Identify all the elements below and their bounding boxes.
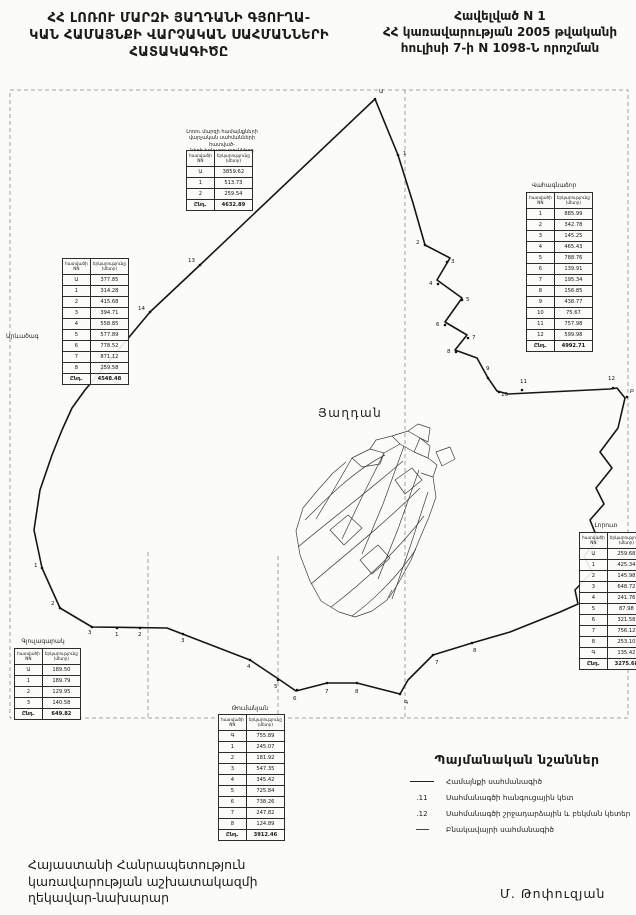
length-table-north: հատվածի NNերկարությունը (մետր)Ա3859.6215… (186, 150, 253, 211)
segment-length-cell: 513.73 (214, 178, 252, 189)
table-row: 5577.89 (63, 330, 129, 341)
boundary-point-label: 7 (325, 690, 329, 696)
boundary-point-dot (467, 337, 470, 340)
segment-length-cell: 465.43 (554, 242, 592, 253)
total-label-cell: Ընդ. (527, 341, 555, 352)
point-number-cell: 2 (187, 189, 215, 200)
table-row: 1075.67 (527, 308, 593, 319)
table-row: 5788.76 (527, 253, 593, 264)
table-row: Ա189.50 (15, 665, 81, 676)
boundary-point-dot (626, 396, 629, 399)
segment-length-cell: 145.98 (607, 571, 636, 582)
point-number-cell: 6 (580, 615, 608, 626)
point-number-cell: 8 (580, 637, 608, 648)
table-row: 1189.79 (15, 676, 81, 687)
total-label-cell: Ընդ. (15, 709, 43, 720)
boundary-point-dot (296, 689, 299, 692)
total-length-cell: 3912.46 (246, 830, 284, 841)
point-number-cell: 11 (527, 319, 555, 330)
table-row: 2259.54 (187, 189, 253, 200)
table-row: 2181.92 (219, 753, 285, 764)
table-row: 7247.82 (219, 808, 285, 819)
segment-length-cell: 547.35 (246, 764, 284, 775)
segment-length-cell: 135.42 (607, 648, 636, 659)
point-number-cell: 5 (580, 604, 608, 615)
boundary-point-dot (326, 682, 329, 685)
parcel-line (355, 590, 392, 617)
neighbor-community-label: Արևածագ (6, 333, 39, 340)
total-label-cell: Ընդ. (187, 200, 215, 211)
table-header-cell: հատվածի NN (15, 649, 43, 665)
boundary-length-table: հատվածի NNերկարությունը (մետր)Ա3859.6215… (186, 150, 253, 211)
table-caption-east-upper: Վահագնաձոր (522, 182, 586, 190)
boundary-point-dot (277, 679, 280, 682)
table-row: 3394.71 (63, 308, 129, 319)
parcel-line (296, 508, 310, 581)
table-header-cell: հատվածի NN (580, 533, 608, 549)
point-number-cell: 7 (219, 808, 247, 819)
boundary-point-dot (455, 351, 458, 354)
parcel-line (436, 447, 455, 466)
community-name-label: Յաղդան (318, 406, 382, 420)
boundary-point-label: 3 (451, 260, 455, 266)
length-table-south-west: հատվածի NNերկարությունը (մետր)Ա189.50118… (14, 648, 81, 720)
segment-length-cell: 599.98 (554, 330, 592, 341)
table-row: 4558.85 (63, 319, 129, 330)
table-row: 6139.91 (527, 264, 593, 275)
boundary-point-dot (471, 642, 474, 645)
table-row: 2129.95 (15, 687, 81, 698)
segment-length-cell: 885.99 (554, 209, 592, 220)
table-header-cell: հատվածի NN (219, 715, 247, 731)
table-row: 8156.85 (527, 286, 593, 297)
boundary-length-table: հատվածի NNերկարությունը (մետր)Ա259.68142… (579, 532, 636, 670)
boundary-point-label: 5 (274, 685, 278, 691)
point-number-cell: Ա (187, 167, 215, 178)
legend: Պայմանական նշաններ Համայնքի սահմանագիծ.1… (398, 752, 636, 834)
point-number-cell: 4 (580, 593, 608, 604)
boundary-point-dot (446, 261, 449, 264)
point-number-cell: 1 (187, 178, 215, 189)
segment-length-cell: 156.85 (554, 286, 592, 297)
table-row: 3547.35 (219, 764, 285, 775)
segment-length-cell: 145.25 (554, 231, 592, 242)
node-point-symbol: .11 (404, 794, 440, 802)
parcel-line (316, 458, 352, 519)
table-row: 4241.76 (580, 593, 636, 604)
segment-length-cell: 139.91 (554, 264, 592, 275)
table-row: Գ755.89 (219, 731, 285, 742)
table-row: 4465.43 (527, 242, 593, 253)
boundary-point-label: 8 (473, 649, 477, 655)
boundary-point-dot (356, 682, 359, 685)
boundary-point-label: 2 (51, 602, 55, 608)
segment-length-cell: 129.95 (42, 687, 80, 698)
segment-length-cell: 195.34 (554, 275, 592, 286)
point-number-cell: 4 (63, 319, 91, 330)
boundary-point-label: 14 (138, 307, 145, 313)
boundary-point-dot (612, 387, 615, 390)
table-header-cell: երկարությունը (մետր) (42, 649, 80, 665)
point-number-cell: 2 (219, 753, 247, 764)
boundary-point-dot (498, 391, 501, 394)
boundary-point-label: 12 (608, 377, 615, 383)
boundary-point-label: 11 (520, 380, 527, 386)
point-number-cell: 7 (63, 352, 91, 363)
boundary-point-dot (249, 659, 252, 662)
parcel-line (310, 581, 355, 617)
legend-item: Համայնքի սահմանագիծ (404, 777, 636, 786)
boundary-point-label: 9 (486, 367, 490, 373)
length-table-south: հատվածի NNերկարությունը (մետր)Գ755.89124… (218, 714, 285, 841)
segment-length-cell: 247.82 (246, 808, 284, 819)
table-row: 6738.26 (219, 797, 285, 808)
segment-length-cell: 259.58 (90, 363, 128, 374)
table-total-row: Ընդ.649.82 (15, 709, 81, 720)
segment-length-cell: 87.98 (607, 604, 636, 615)
settlement-parcels (296, 424, 455, 617)
boundary-point-label: 8 (447, 350, 451, 356)
point-number-cell: 6 (527, 264, 555, 275)
segment-length-cell: 342.78 (554, 220, 592, 231)
segment-length-cell: 425.34 (607, 560, 636, 571)
total-label-cell: Ընդ. (219, 830, 247, 841)
segment-length-cell: 189.79 (42, 676, 80, 687)
table-header-cell: երկարությունը (մետր) (90, 259, 128, 275)
boundary-point-dot (444, 324, 447, 327)
legend-item: .12Սահմանագծի շրջադարձային և բեկման կետե… (404, 809, 636, 818)
boundary-point-dot (397, 154, 400, 157)
total-label-cell: Ընդ. (63, 374, 91, 385)
boundary-point-dot (487, 377, 490, 380)
point-number-cell: 2 (15, 687, 43, 698)
point-number-cell: 7 (527, 275, 555, 286)
point-number-cell: 1 (63, 286, 91, 297)
total-label-cell: Ընդ. (580, 659, 608, 670)
legend-item: .11Սահմանագծի հանգուցային կետ (404, 793, 636, 802)
table-caption-south: Թումանյան (208, 705, 292, 713)
segment-length-cell: 314.28 (90, 286, 128, 297)
point-number-cell: 2 (580, 571, 608, 582)
boundary-point-dot (399, 693, 402, 696)
table-row: 1245.07 (219, 742, 285, 753)
table-row: 7871.12 (63, 352, 129, 363)
boundary-point-label: 2 (416, 241, 420, 247)
segment-length-cell: 648.72 (607, 582, 636, 593)
segment-length-cell: 321.58 (607, 615, 636, 626)
parcel-line (392, 492, 428, 599)
boundary-length-table: հատվածի NNերկարությունը (մետր)Ա189.50118… (14, 648, 81, 720)
table-row: 2145.98 (580, 571, 636, 582)
table-row: 1425.34 (580, 560, 636, 571)
segment-length-cell: 345.42 (246, 775, 284, 786)
point-number-cell: 1 (15, 676, 43, 687)
segment-length-cell: 181.92 (246, 753, 284, 764)
table-total-row: Ընդ.4632.89 (187, 200, 253, 211)
table-row: Ա3859.62 (187, 167, 253, 178)
point-number-cell: 8 (63, 363, 91, 374)
point-number-cell: 10 (527, 308, 555, 319)
table-row: 3145.25 (527, 231, 593, 242)
point-number-cell: 5 (527, 253, 555, 264)
parcel-line (421, 458, 437, 477)
table-row: 5725.84 (219, 786, 285, 797)
table-row: 3140.58 (15, 698, 81, 709)
segment-length-cell: 755.89 (246, 731, 284, 742)
table-header-cell: երկարությունը (մետր) (554, 193, 592, 209)
parcel-line (378, 470, 419, 579)
segment-length-cell: 189.50 (42, 665, 80, 676)
table-row: 3648.72 (580, 582, 636, 593)
table-total-row: Ընդ.4548.48 (63, 374, 129, 385)
segment-length-cell: 377.85 (90, 275, 128, 286)
point-number-cell: Գ (219, 731, 247, 742)
point-number-cell: 1 (580, 560, 608, 571)
boundary-point-label: 5 (466, 298, 470, 304)
legend-item: Բնակավայրի սահմանագիծ (404, 825, 636, 834)
segment-length-cell: 871.12 (90, 352, 128, 363)
point-number-cell: 5 (219, 786, 247, 797)
boundary-point-label: 13 (188, 259, 195, 265)
parcel-line (305, 455, 385, 520)
boundary-point-label: 1 (115, 633, 119, 639)
boundary-point-label: 4 (247, 665, 251, 671)
point-number-cell: 9 (527, 297, 555, 308)
table-header-cell: հատվածի NN (187, 151, 215, 167)
table-row: 1885.99 (527, 209, 593, 220)
table-header-cell: երկարությունը (մետր) (246, 715, 284, 731)
point-number-cell: 6 (219, 797, 247, 808)
table-caption-east-lower: Լորուտ (578, 522, 634, 530)
settlement-line-symbol (404, 829, 440, 830)
point-number-cell: Գ (580, 648, 608, 659)
point-number-cell: 4 (527, 242, 555, 253)
table-row: 12599.98 (527, 330, 593, 341)
boundary-point-dot (59, 607, 62, 610)
break-point-symbol: .12 (404, 810, 440, 818)
segment-length-cell: 577.89 (90, 330, 128, 341)
segment-length-cell: 3859.62 (214, 167, 252, 178)
point-number-cell: 12 (527, 330, 555, 341)
parcel-line (298, 461, 403, 547)
length-table-west: հատվածի NNերկարությունը (մետր)Ա377.85131… (62, 258, 129, 385)
point-number-cell: 3 (219, 764, 247, 775)
table-header-cell: հատվածի NN (63, 259, 91, 275)
signatory-position: Հայաստանի Հանրապետություն կառավարության … (28, 857, 258, 907)
legend-item-label: Բնակավայրի սահմանագիծ (446, 825, 554, 834)
segment-length-cell: 738.26 (246, 797, 284, 808)
point-number-cell: 2 (527, 220, 555, 231)
point-number-cell: 8 (219, 819, 247, 830)
boundary-point-dot (521, 389, 524, 392)
table-header-cell: երկարությունը (մետր) (214, 151, 252, 167)
segment-length-cell: 415.68 (90, 297, 128, 308)
segment-length-cell: 788.76 (554, 253, 592, 264)
boundary-point-label: 7 (472, 336, 476, 342)
boundary-point-label: 10 (501, 393, 508, 399)
boundary-point-dot (149, 311, 152, 314)
boundary-point-dot (437, 283, 440, 286)
point-number-cell: 8 (527, 286, 555, 297)
signatory-name: Մ. Թոփուզյան (500, 886, 605, 901)
parcel-line (392, 431, 420, 452)
segment-length-cell: 259.68 (607, 549, 636, 560)
segment-length-cell: 394.71 (90, 308, 128, 319)
table-row: 6778.52 (63, 341, 129, 352)
boundary-point-dot (432, 654, 435, 657)
boundary-point-label: Ա (379, 90, 383, 96)
table-row: Ա259.68 (580, 549, 636, 560)
boundary-point-label: 1 (403, 152, 407, 158)
boundary-point-label: 1 (34, 564, 38, 570)
parcel-line (414, 438, 430, 458)
point-number-cell: 4 (219, 775, 247, 786)
table-total-row: Ընդ.3275.68 (580, 659, 636, 670)
parcel-line (342, 453, 384, 539)
table-row: 2342.78 (527, 220, 593, 231)
segment-length-cell: 259.54 (214, 189, 252, 200)
total-length-cell: 3275.68 (607, 659, 636, 670)
boundary-point-dot (182, 633, 185, 636)
boundary-point-label: 6 (293, 697, 297, 703)
point-number-cell: 7 (580, 626, 608, 637)
boundary-point-label: 3 (88, 631, 92, 637)
total-length-cell: 649.82 (42, 709, 80, 720)
segment-length-cell: 778.52 (90, 341, 128, 352)
boundary-point-dot (199, 264, 202, 267)
table-row: 1314.28 (63, 286, 129, 297)
segment-length-cell: 558.85 (90, 319, 128, 330)
table-row: Ա377.85 (63, 275, 129, 286)
total-length-cell: 4632.89 (214, 200, 252, 211)
boundary-point-dot (139, 627, 142, 630)
boundary-point-dot (91, 626, 94, 629)
total-length-cell: 4992.71 (554, 341, 592, 352)
boundary-point-dot (374, 98, 377, 101)
point-number-cell: 3 (15, 698, 43, 709)
segment-length-cell: 124.89 (246, 819, 284, 830)
table-total-row: Ընդ.3912.46 (219, 830, 285, 841)
table-row: 587.98 (580, 604, 636, 615)
segment-length-cell: 253.10 (607, 637, 636, 648)
point-number-cell: Ա (580, 549, 608, 560)
table-row: 8253.10 (580, 637, 636, 648)
point-number-cell: 3 (63, 308, 91, 319)
legend-item-label: Սահմանագծի հանգուցային կետ (446, 793, 573, 802)
segment-length-cell: 140.58 (42, 698, 80, 709)
segment-length-cell: 438.77 (554, 297, 592, 308)
point-number-cell: 6 (63, 341, 91, 352)
boundary-point-label: 4 (429, 282, 433, 288)
boundary-point-label: 2 (138, 633, 142, 639)
legend-item-label: Համայնքի սահմանագիծ (446, 777, 542, 786)
boundary-point-label: 3 (181, 639, 185, 645)
segment-length-cell: 757.98 (554, 319, 592, 330)
length-table-east-upper: հատվածի NNերկարությունը (մետր)1885.99234… (526, 192, 593, 352)
boundary-point-label: 8 (355, 690, 359, 696)
point-number-cell: Ա (63, 275, 91, 286)
solid-line-symbol (404, 781, 440, 782)
point-number-cell: 5 (63, 330, 91, 341)
boundary-point-dot (424, 244, 427, 247)
boundary-point-dot (41, 567, 44, 570)
legend-items: Համայնքի սահմանագիծ.11Սահմանագծի հանգուց… (398, 777, 636, 834)
point-number-cell: 3 (580, 582, 608, 593)
table-row: 8124.89 (219, 819, 285, 830)
table-caption-south-west: Գյուլագարակ (10, 638, 76, 646)
point-number-cell: 3 (527, 231, 555, 242)
legend-item-label: Սահմանագծի շրջադարձային և բեկման կետեր (446, 809, 630, 818)
point-number-cell: Ա (15, 665, 43, 676)
table-row: 9438.77 (527, 297, 593, 308)
table-total-row: Ընդ.4992.71 (527, 341, 593, 352)
table-row: 4345.42 (219, 775, 285, 786)
parcel-line (362, 446, 404, 554)
table-header-cell: հատվածի NN (527, 193, 555, 209)
boundary-point-label: 7 (435, 661, 439, 667)
legend-title: Պայմանական նշաններ (398, 752, 636, 767)
parcel-line (311, 488, 420, 584)
boundary-point-label: Գ (404, 701, 408, 707)
boundary-point-dot (461, 299, 464, 302)
length-table-east-lower: հատվածի NNերկարությունը (մետր)Ա259.68142… (579, 532, 636, 670)
point-number-cell: 2 (63, 297, 91, 308)
boundary-length-table: հատվածի NNերկարությունը (մետր)1885.99234… (526, 192, 593, 352)
segment-length-cell: 241.76 (607, 593, 636, 604)
table-row: 6321.58 (580, 615, 636, 626)
segment-length-cell: 725.84 (246, 786, 284, 797)
boundary-length-table: հատվածի NNերկարությունը (մետր)Ա377.85131… (62, 258, 129, 385)
table-header-cell: երկարությունը (մետր) (607, 533, 636, 549)
point-number-cell: 1 (527, 209, 555, 220)
table-row: 1513.73 (187, 178, 253, 189)
table-row: Գ135.42 (580, 648, 636, 659)
boundary-point-dot (116, 627, 119, 630)
point-number-cell: 1 (219, 742, 247, 753)
segment-length-cell: 756.12 (607, 626, 636, 637)
table-row: 11757.98 (527, 319, 593, 330)
boundary-point-label: 6 (436, 323, 440, 329)
boundary-length-table: հատվածի NNերկարությունը (մետր)Գ755.89124… (218, 714, 285, 841)
table-row: 2415.68 (63, 297, 129, 308)
table-row: 7756.12 (580, 626, 636, 637)
table-row: 8259.58 (63, 363, 129, 374)
total-length-cell: 4548.48 (90, 374, 128, 385)
segment-length-cell: 75.67 (554, 308, 592, 319)
boundary-point-label: Բ (630, 390, 634, 396)
segment-length-cell: 245.07 (246, 742, 284, 753)
table-row: 7195.34 (527, 275, 593, 286)
